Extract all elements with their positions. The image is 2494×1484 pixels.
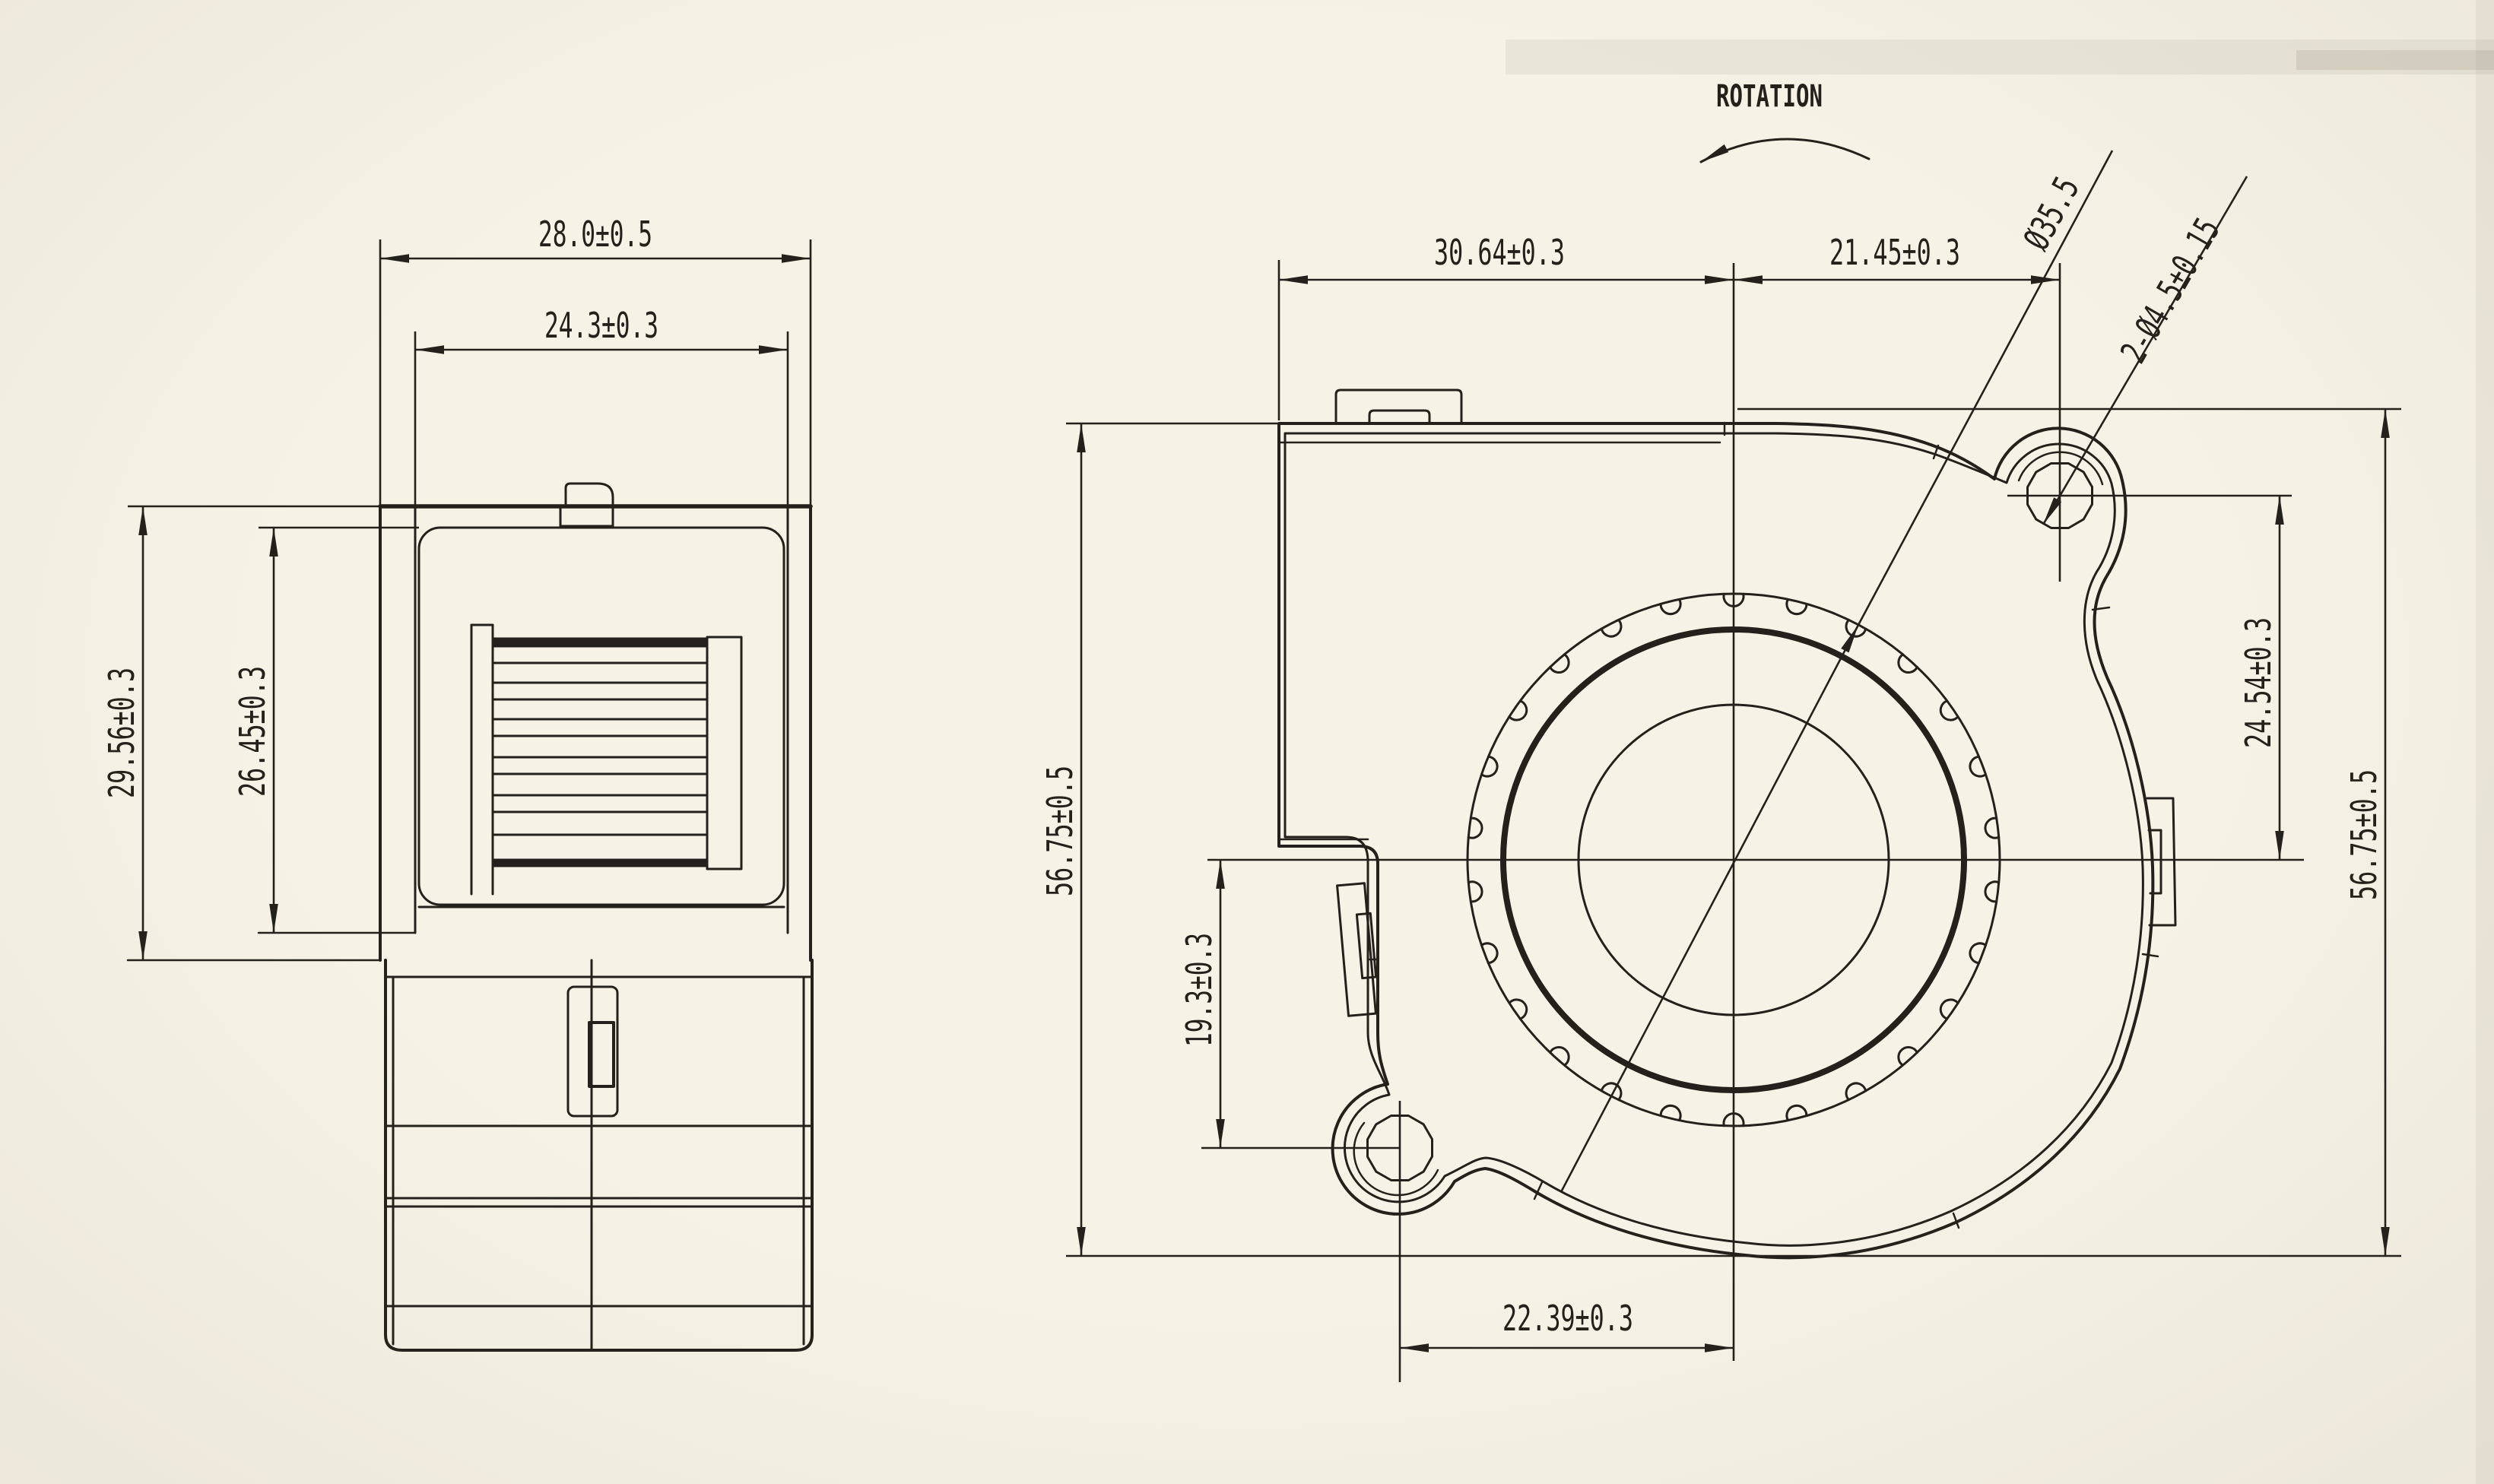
dim-inlet-width: 24.3±0.3 xyxy=(544,305,658,346)
dim-housing-width: 28.0±0.5 xyxy=(538,214,652,255)
rotation-label: ROTATION xyxy=(1716,79,1823,114)
dim-left-edge-to-center: 30.64±0.3 xyxy=(1434,232,1565,273)
dim-overall-height-right: 56.75±0.5 xyxy=(2343,769,2385,900)
front-view-dimensions: 30.64±0.3 21.45±0.3 56.75±0.5 56.75±0.5 … xyxy=(1039,232,2401,1348)
side-top-tab xyxy=(566,484,613,506)
motor-cavity xyxy=(419,528,784,905)
mounting-holes-label: 2-Ø4.5±0.15 xyxy=(2112,211,2228,370)
volute-outline-outer xyxy=(1279,423,2153,1257)
dim-lower-hole-to-center: 22.39±0.3 xyxy=(1502,1298,1633,1339)
front-view: 30.64±0.3 21.45±0.3 56.75±0.5 56.75±0.5 … xyxy=(1039,79,2401,1382)
mounting-holes xyxy=(1368,464,2093,1181)
dim-hole-center-height: 24.54±0.3 xyxy=(2238,617,2279,748)
blower-fan-technical-drawing: 28.0±0.5 24.3±0.3 29.56±0.3 26.45±0.3 xyxy=(0,0,2494,1484)
dim-housing-height: 29.56±0.3 xyxy=(101,667,142,798)
dim-motor-height: 26.45±0.3 xyxy=(232,666,273,797)
dim-center-to-hole: 21.45±0.3 xyxy=(1829,232,1960,273)
dim-overall-height-left: 56.75±0.5 xyxy=(1039,766,1080,896)
dim-center-to-lower-hole: 19.3±0.3 xyxy=(1179,933,1220,1047)
impeller-diameter-leader xyxy=(1561,625,1858,1192)
impeller-diameter-label: Ø35.5 xyxy=(2016,170,2088,257)
duct-clip-inner xyxy=(589,1023,614,1086)
stator-grille xyxy=(471,625,741,894)
volute-outline-inner xyxy=(1285,433,2143,1245)
outlet-duct-side xyxy=(386,960,812,1350)
side-view-dimensions: 28.0±0.5 24.3±0.3 29.56±0.3 26.45±0.3 xyxy=(101,214,811,960)
side-view: 28.0±0.5 24.3±0.3 29.56±0.3 26.45±0.3 xyxy=(101,214,812,1350)
rotation-arrow xyxy=(1701,139,1869,162)
volute-details xyxy=(1279,390,2175,1228)
